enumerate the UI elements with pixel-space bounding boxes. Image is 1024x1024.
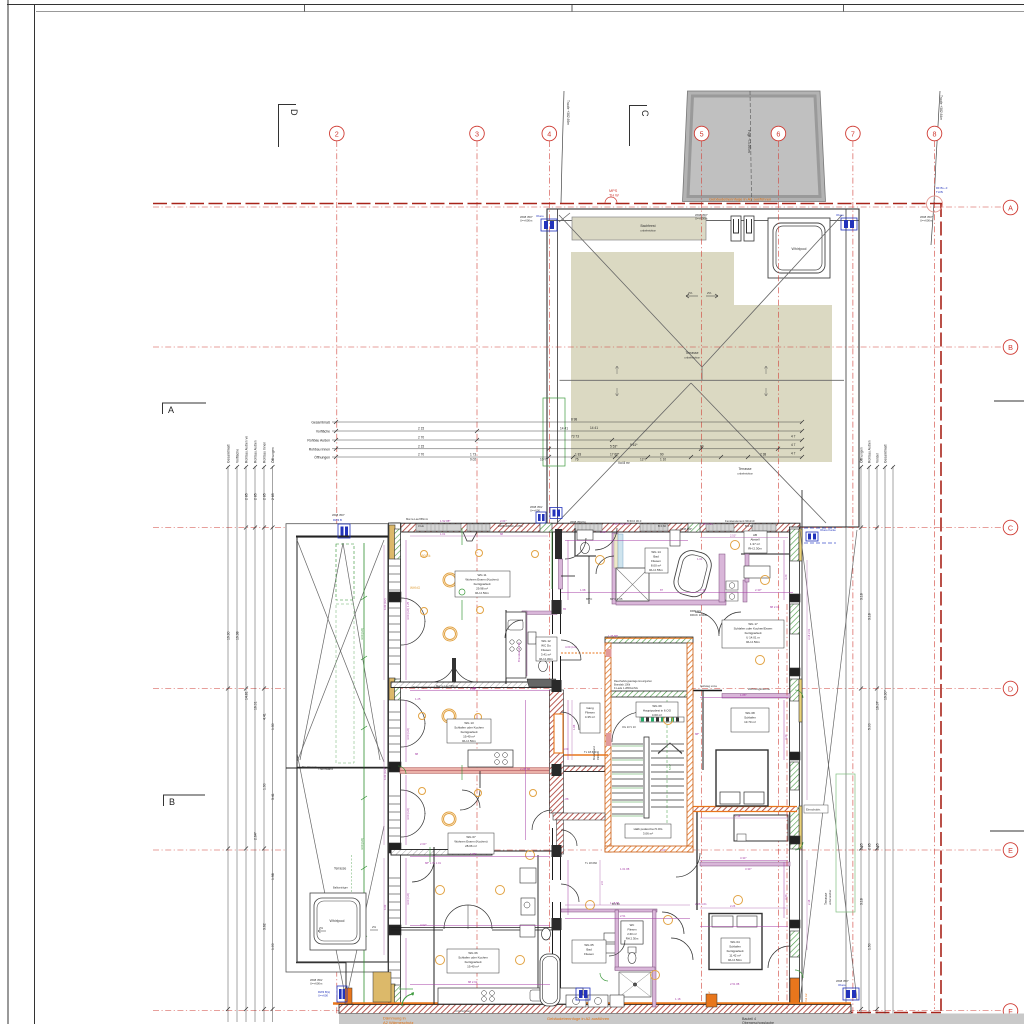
svg-text:AB: AB — [753, 533, 757, 537]
svg-text:U=+600m: U=+600m — [310, 982, 323, 986]
svg-text:2.26 1.01: 2.26 1.01 — [695, 902, 707, 906]
svg-text:5.00: 5.00 — [868, 723, 872, 730]
svg-text:12⁴7: 12⁴7 — [640, 458, 647, 462]
svg-text:unbeheizbar: unbeheizbar — [684, 356, 699, 360]
svg-text:Gesamtmaß: Gesamtmaß — [311, 421, 330, 425]
svg-text:3: 3 — [475, 130, 479, 139]
svg-text:3 Hü: 3 Hü — [418, 524, 424, 528]
svg-text:1.88*: 1.88* — [470, 687, 476, 691]
svg-text:B 0.60: B 0.60 — [612, 902, 620, 906]
svg-text:A: A — [1008, 204, 1013, 213]
svg-text:RH 2.50m: RH 2.50m — [462, 739, 476, 743]
svg-text:3.34*: 3.34* — [740, 856, 747, 860]
svg-text:TH Bi: TH Bi — [936, 190, 943, 194]
svg-text:88 2.01: 88 2.01 — [770, 605, 780, 609]
svg-text:4.35 m²: 4.35 m² — [585, 715, 595, 719]
svg-text:Gesamtmaß: Gesamtmaß — [884, 444, 888, 463]
svg-text:Bad: Bad — [586, 948, 592, 952]
svg-text:Fertigparkett: Fertigparkett — [461, 730, 478, 734]
svg-text:Unterschrank: Unterschrank — [455, 1009, 472, 1013]
svg-text:C: C — [1008, 524, 1013, 533]
svg-text:Rohbau Außen: Rohbau Außen — [254, 440, 258, 463]
svg-text:unbeheizbar: unbeheizbar — [640, 229, 655, 233]
svg-text:U=+600m: U=+600m — [920, 219, 933, 223]
svg-text:U=+600m: U=+600m — [695, 217, 708, 221]
svg-text:4.00 (1/2) 1.25: 4.00 (1/2) 1.25 — [406, 601, 410, 620]
svg-text:2.51: 2.51 — [620, 914, 626, 918]
svg-text:4 7: 4 7 — [791, 452, 796, 456]
svg-text:B: B — [1008, 343, 1013, 352]
svg-text:7: 7 — [851, 130, 855, 139]
svg-text:2.38: 2.38 — [807, 899, 811, 905]
svg-text:WG 05: WG 05 — [584, 943, 594, 947]
svg-text:2 85: 2 85 — [263, 493, 267, 500]
svg-text:2 85: 2 85 — [868, 843, 872, 850]
svg-text:2.38: 2.38 — [700, 588, 706, 592]
svg-text:14 41: 14 41 — [560, 427, 568, 431]
svg-text:11.42 m²: 11.42 m² — [729, 954, 741, 958]
svg-text:Fertigparkett: Fertigparkett — [727, 949, 744, 953]
svg-text:4.00 (1/2): 4.00 (1/2) — [383, 598, 387, 610]
svg-text:65: 65 — [563, 607, 567, 611]
svg-text:15000k: 15000k — [420, 554, 431, 558]
svg-text:Halb podest bei 5.OG: Halb podest bei 5.OG — [634, 827, 664, 831]
svg-text:1.52 88*: 1.52 88* — [440, 519, 451, 523]
svg-text:1.90: 1.90 — [263, 783, 267, 790]
svg-text:2: 2 — [335, 130, 339, 139]
svg-text:Rohbau Innen: Rohbau Innen — [263, 442, 267, 463]
svg-text:4.00 (1/2): 4.00 (1/2) — [406, 893, 410, 905]
svg-text:WD8 350/24: WD8 350/24 — [570, 520, 586, 524]
svg-text:1.25: 1.25 — [415, 697, 421, 701]
svg-text:Schlafen oder Kochen: Schlafen oder Kochen — [454, 726, 484, 730]
svg-text:4.20: 4.20 — [784, 734, 788, 740]
svg-text:OG 10 V 10: OG 10 V 10 — [622, 725, 636, 729]
svg-text:1.88: 1.88 — [563, 797, 569, 801]
svg-text:14 41: 14 41 — [590, 426, 598, 430]
svg-text:5.57*: 5.57* — [668, 764, 672, 770]
svg-text:WD8 350°: WD8 350° — [836, 979, 849, 983]
svg-text:3.41 m²: 3.41 m² — [541, 653, 551, 657]
svg-text:B 0.60: B 0.60 — [745, 524, 754, 528]
svg-text:Fertigparkett: Fertigparkett — [745, 631, 762, 635]
svg-text:U=+600m: U=+600m — [520, 219, 533, 223]
svg-text:Wohnen Essen (Kochen): Wohnen Essen (Kochen) — [454, 840, 487, 844]
svg-text:19.38: 19.38 — [236, 631, 240, 640]
svg-text:4 7: 4 7 — [791, 443, 796, 447]
svg-text:88: 88 — [500, 532, 503, 536]
svg-text:4.00 (1/2): 4.00 (1/2) — [383, 768, 387, 780]
svg-text:U=+600: U=+600 — [318, 994, 328, 998]
svg-text:2 70: 2 70 — [418, 436, 424, 440]
svg-text:28.06 m²: 28.06 m² — [465, 844, 477, 848]
svg-text:WG 08: WG 08 — [745, 711, 755, 715]
svg-text:B 60.0 30.0: B 60.0 30.0 — [627, 519, 642, 523]
svg-text:1.88*: 1.88* — [470, 852, 477, 856]
svg-text:13.70 m²: 13.70 m² — [744, 720, 756, 724]
svg-text:U=+600: U=+600 — [530, 509, 540, 513]
svg-text:Fertigparkett: Fertigparkett — [474, 582, 491, 586]
svg-text:4.20: 4.20 — [784, 574, 788, 580]
svg-text:Gang: Gang — [586, 706, 594, 710]
svg-text:Traufe +382.69m: Traufe +382.69m — [566, 100, 570, 125]
svg-text:8.00 m²: 8.00 m² — [651, 564, 661, 568]
svg-text:73 73: 73 73 — [571, 435, 579, 439]
svg-text:Brandwand: Brandwand — [592, 746, 596, 760]
svg-text:Vol A2: Vol A2 — [804, 993, 808, 1002]
svg-text:2%: 2% — [372, 925, 377, 929]
svg-text:Abstell: Abstell — [750, 538, 759, 542]
svg-text:MPS: MPS — [609, 189, 618, 193]
svg-text:19.30*: 19.30* — [884, 690, 888, 700]
svg-text:2.51 88: 2.51 88 — [730, 982, 740, 986]
svg-text:2.64*: 2.64* — [420, 842, 427, 846]
svg-text:2 85: 2 85 — [245, 493, 249, 500]
svg-text:5: 5 — [700, 130, 704, 139]
svg-text:Hauptpodest in 6.OG: Hauptpodest in 6.OG — [643, 709, 672, 713]
svg-text:Brandab 100k: Brandab 100k — [614, 683, 631, 687]
svg-text:Brandwand F90: Brandwand F90 — [517, 642, 521, 662]
svg-text:4.00 (1/2): 4.00 (1/2) — [406, 808, 410, 820]
svg-text:E: E — [1008, 846, 1013, 855]
svg-text:Vorfläche: Vorfläche — [236, 449, 240, 463]
svg-text:9.02: 9.02 — [470, 458, 476, 462]
svg-text:Fliesen: Fliesen — [584, 952, 594, 956]
svg-text:1.68: 1.68 — [580, 588, 586, 592]
svg-text:3.34*: 3.34* — [745, 867, 752, 871]
svg-text:2%: 2% — [319, 926, 324, 930]
svg-text:1.88: 1.88 — [572, 724, 576, 730]
svg-text:RH 2.30m: RH 2.30m — [539, 657, 553, 661]
svg-text:2.01*: 2.01* — [500, 519, 507, 523]
svg-text:2 15: 2 15 — [418, 427, 424, 431]
svg-text:WD8 350°: WD8 350° — [680, 527, 692, 531]
svg-text:U 14.01 m: U 14.01 m — [746, 636, 760, 640]
svg-text:1.98: 1.98 — [271, 873, 275, 880]
svg-text:Wohnen Essen (Kochen): Wohnen Essen (Kochen) — [465, 578, 498, 582]
svg-text:3.62: 3.62 — [263, 923, 267, 930]
svg-text:unbeheizbar: unbeheizbar — [828, 890, 832, 905]
svg-text:RH 2.50m: RH 2.50m — [728, 958, 742, 962]
svg-text:Rohbau Außen vo: Rohbau Außen vo — [245, 436, 249, 463]
svg-text:F90 AB: F90 AB — [596, 751, 600, 760]
svg-text:Schlafen: Schlafen — [729, 945, 741, 949]
svg-text:1.50: 1.50 — [868, 943, 872, 950]
svg-text:Wohnungstrennw: Wohnungstrennw — [748, 687, 771, 691]
svg-text:19.40 m²: 19.40 m² — [467, 965, 479, 969]
svg-text:RH 2.50m: RH 2.50m — [746, 640, 760, 644]
svg-text:14.81: 14.81 — [245, 691, 249, 700]
svg-text:A: A — [168, 405, 174, 415]
svg-text:3.41: 3.41 — [271, 793, 275, 800]
svg-text:RH 2.30m: RH 2.30m — [626, 937, 639, 941]
svg-text:4 7: 4 7 — [791, 435, 796, 439]
svg-text:3.18: 3.18 — [868, 613, 872, 620]
svg-text:3.62*: 3.62* — [420, 923, 427, 927]
svg-text:Obere: Obere — [536, 214, 544, 218]
svg-text:C: C — [640, 110, 650, 117]
svg-text:2.30*: 2.30* — [755, 588, 762, 592]
svg-text:Whirlpool: Whirlpool — [330, 919, 345, 923]
svg-text:1.18* 2.51: 1.18* 2.51 — [700, 522, 713, 526]
svg-text:WHNG: WHNG — [410, 586, 421, 590]
svg-text:Einschubtr.: Einschubtr. — [806, 808, 821, 812]
svg-text:2 85: 2 85 — [254, 493, 258, 500]
svg-text:Rohbau Außen: Rohbau Außen — [868, 440, 872, 463]
svg-text:1.37 m²: 1.37 m² — [750, 542, 760, 546]
svg-text:WC: WC — [630, 923, 635, 927]
svg-text:Fliesen: Fliesen — [627, 928, 636, 932]
svg-text:Gebäudetrennfuge in A2 ausführ: Gebäudetrennfuge in A2 ausführen — [547, 1016, 609, 1021]
svg-text:1.38: 1.38 — [735, 814, 741, 818]
svg-text:B: B — [169, 797, 175, 807]
svg-text:Fertigparkett: Fertigparkett — [465, 960, 482, 964]
svg-text:8 98: 8 98 — [571, 418, 577, 422]
svg-text:2.51*: 2.51* — [730, 534, 736, 538]
svg-text:Fliesen: Fliesen — [585, 711, 595, 715]
svg-text:1.00: 1.00 — [271, 943, 275, 950]
svg-text:87: 87 — [660, 588, 664, 592]
svg-text:F-Lade 1.28RGL/NG: F-Lade 1.28RGL/NG — [614, 686, 638, 690]
svg-text:4.00 (1/2): 4.00 (1/2) — [360, 628, 364, 640]
svg-text:Fensterelement 90x210: Fensterelement 90x210 — [725, 519, 755, 523]
svg-text:2 85: 2 85 — [271, 493, 275, 500]
svg-text:88* 1.76 1.01: 88* 1.76 1.01 — [425, 861, 441, 865]
svg-text:88: 88 — [415, 752, 419, 756]
svg-text:88 2.62: 88 2.62 — [468, 980, 478, 984]
svg-text:1.88*: 1.88* — [740, 693, 747, 697]
svg-text:Vorder: Vorder — [876, 452, 880, 463]
svg-text:RH 2.30m: RH 2.30m — [748, 547, 762, 551]
svg-text:WD8 350°: WD8 350° — [332, 513, 345, 517]
svg-text:17 68*: 17 68* — [610, 453, 620, 457]
svg-text:1.18: 1.18 — [675, 997, 681, 1001]
svg-text:Balkonträger: Balkonträger — [333, 886, 348, 890]
svg-text:4.00: 4.00 — [383, 904, 387, 910]
svg-text:3.18 2.01: 3.18 2.01 — [807, 628, 811, 640]
svg-text:WG 13: WG 13 — [464, 721, 474, 725]
svg-text:2 70: 2 70 — [418, 453, 424, 457]
svg-text:2 38: 2 38 — [760, 453, 766, 457]
svg-text:Öffnungen: Öffnungen — [271, 447, 275, 463]
svg-text:3.06 m²: 3.06 m² — [643, 832, 653, 836]
svg-text:A2 Wärmeschutz: A2 Wärmeschutz — [383, 1020, 413, 1024]
svg-text:D: D — [289, 109, 299, 116]
svg-text:16.07: 16.07 — [876, 701, 880, 710]
svg-text:Traufe +382.64m: Traufe +382.64m — [939, 95, 943, 120]
svg-text:Vol 8 m³: Vol 8 m³ — [618, 461, 630, 465]
svg-text:Schlafen oder Kochen: Schlafen oder Kochen — [458, 956, 488, 960]
svg-text:4.20: 4.20 — [784, 894, 788, 900]
svg-text:29.98 m²: 29.98 m² — [476, 587, 488, 591]
svg-text:unbeheizbar: unbeheizbar — [737, 472, 752, 476]
svg-text:65°C: 65°C — [586, 597, 592, 601]
svg-text:WC Du: WC Du — [541, 644, 551, 648]
svg-text:Vol A2: Vol A2 — [707, 991, 711, 1000]
svg-text:Fuge +/-0.950m: Fuge +/-0.950m — [747, 130, 751, 153]
svg-text:Tx 18.660: Tx 18.660 — [585, 861, 597, 865]
svg-text:2%: 2% — [688, 291, 693, 295]
svg-text:Bad: Bad — [653, 555, 659, 559]
svg-text:Öffnungen: Öffnungen — [860, 447, 864, 463]
svg-text:WG 17: WG 17 — [748, 622, 758, 626]
svg-text:2.60 m²: 2.60 m² — [627, 932, 637, 936]
svg-text:4.60 m²: 4.60 m² — [652, 713, 662, 717]
svg-text:90: 90 — [660, 453, 664, 457]
svg-text:WG 11: WG 11 — [477, 573, 486, 577]
svg-text:1.01: 1.01 — [440, 532, 446, 536]
svg-text:RH 2.50m: RH 2.50m — [475, 591, 489, 595]
svg-text:Mai re-Lauf B6mm: Mai re-Lauf B6mm — [406, 517, 429, 521]
svg-text:4.00 (1/2): 4.00 (1/2) — [360, 838, 364, 850]
svg-text:6: 6 — [776, 130, 780, 139]
svg-text:WG 14: WG 14 — [651, 550, 661, 554]
svg-text:2.26* 88: 2.26* 88 — [520, 767, 531, 771]
svg-text:65°C 1.05: 65°C 1.05 — [610, 597, 623, 601]
svg-text:2.64*: 2.64* — [254, 831, 258, 840]
svg-text:5 53*: 5 53* — [610, 444, 618, 448]
svg-text:2%: 2% — [707, 291, 712, 295]
svg-text:Vorfläche: Vorfläche — [316, 430, 330, 434]
svg-text:Terrasse: Terrasse — [685, 351, 698, 355]
svg-text:1.01: 1.01 — [697, 557, 703, 561]
svg-text:Die Hinweis: Die Hinweis — [302, 765, 317, 769]
svg-text:4.00 (1/2): 4.00 (1/2) — [406, 728, 410, 740]
svg-text:2.26: 2.26 — [730, 904, 736, 908]
svg-text:Schlafen oder Kochen/Essen: Schlafen oder Kochen/Essen — [734, 627, 773, 631]
svg-text:WG 06: WG 06 — [468, 951, 478, 955]
svg-text:Öffnungen: Öffnungen — [314, 456, 330, 460]
svg-text:Mai re-Lauf B6mm: Mai re-Lauf B6mm — [436, 684, 459, 688]
svg-text:Terrasse: Terrasse — [334, 867, 346, 871]
svg-text:Gehweg unna: Gehweg unna — [700, 684, 717, 688]
svg-text:B 0.60: B 0.60 — [658, 524, 667, 528]
svg-text:WG 07: WG 07 — [466, 835, 476, 839]
svg-text:4: 4 — [547, 130, 551, 139]
svg-text:Schlafen: Schlafen — [744, 716, 756, 720]
svg-text:Obere: Obere — [836, 213, 844, 217]
svg-text:2 15: 2 15 — [418, 444, 424, 448]
svg-text:Gebäudetrennfuge in A2 ausführ: Gebäudetrennfuge in A2 ausführen — [709, 197, 771, 202]
svg-text:19.40 m²: 19.40 m² — [463, 735, 475, 739]
svg-text:1.30: 1.30 — [271, 723, 275, 730]
svg-text:76: 76 — [575, 458, 579, 462]
svg-text:16.01: 16.01 — [254, 701, 258, 710]
svg-text:3.18: 3.18 — [860, 593, 864, 600]
svg-text:1.88*: 1.88* — [600, 530, 607, 534]
svg-text:WG 04: WG 04 — [730, 940, 740, 944]
svg-text:RW3 B: RW3 B — [333, 518, 342, 522]
svg-text:WG 09: WG 09 — [652, 704, 662, 708]
svg-text:D: D — [1008, 685, 1013, 694]
svg-text:1 73: 1 73 — [470, 453, 476, 457]
svg-text:8: 8 — [933, 130, 937, 139]
svg-text:2.0: 2.0 — [600, 881, 604, 885]
svg-text:Fliesen: Fliesen — [651, 559, 661, 563]
svg-text:1 10: 1 10 — [660, 458, 666, 462]
svg-text:4.41: 4.41 — [263, 713, 267, 720]
svg-text:3.18: 3.18 — [860, 898, 864, 905]
svg-text:9 61*: 9 61* — [630, 443, 638, 447]
svg-text:1.76 88*: 1.76 88* — [608, 634, 618, 638]
svg-text:19.30: 19.30 — [227, 631, 231, 640]
svg-text:10⁴7: 10⁴7 — [540, 458, 547, 462]
svg-text:Rohbau Außen: Rohbau Außen — [307, 439, 330, 443]
svg-text:WD8+RD00/−24TM: WD8+RD00/−24TM — [498, 524, 523, 528]
svg-text:WG 12: WG 12 — [541, 639, 551, 643]
svg-text:RH 2.55m: RH 2.55m — [649, 568, 663, 572]
svg-text:1.01 88: 1.01 88 — [620, 867, 630, 871]
svg-text:Obere: Obere — [838, 983, 846, 987]
svg-text:Terrasse: Terrasse — [738, 467, 751, 471]
svg-text:Obere Kante: Obere Kante — [820, 528, 836, 532]
svg-text:Whirlpool: Whirlpool — [792, 247, 807, 251]
svg-text:Fliesen: Fliesen — [541, 648, 551, 652]
svg-text:Wohnungstrennwand: Wohnungstrennwand — [412, 685, 439, 689]
svg-text:Rohbau Innen: Rohbau Innen — [309, 447, 330, 451]
svg-text:Rauchabzugsanlage kreuzgurten: Rauchabzugsanlage kreuzgurten — [614, 679, 653, 683]
svg-text:Bachfeest: Bachfeest — [640, 224, 655, 228]
svg-text:1.01*: 1.01* — [660, 848, 666, 852]
svg-text:Gesamtmaß: Gesamtmaß — [227, 444, 231, 463]
svg-text:1 83: 1 83 — [575, 453, 581, 457]
